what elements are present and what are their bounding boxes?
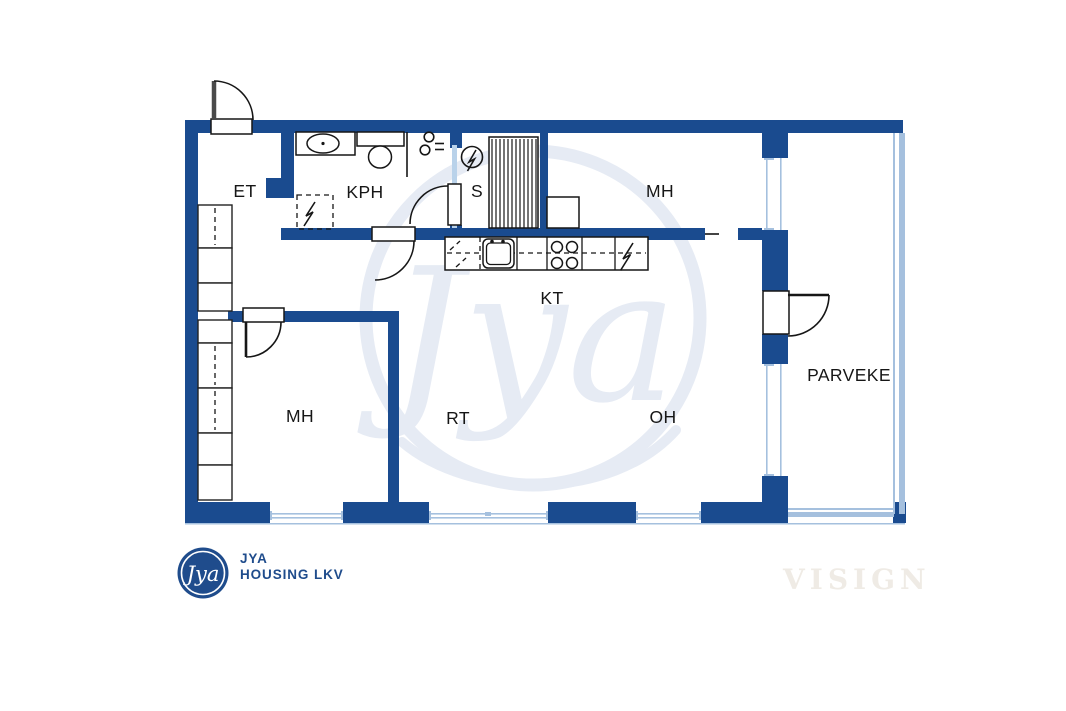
window-bottom-left <box>270 502 343 523</box>
balcony-railing-right <box>893 133 905 514</box>
entry-wardrobes <box>198 205 232 311</box>
balcony-door <box>763 291 829 336</box>
bedroom-closet-block <box>547 197 579 228</box>
left-wall <box>185 120 198 523</box>
east-wall-segment <box>762 133 788 158</box>
wardrobe-unit <box>198 283 232 311</box>
sauna-benches <box>489 137 538 228</box>
kitchen-sink-icon <box>483 239 514 268</box>
brand-logo: Jya JYA HOUSING LKV <box>178 548 344 599</box>
toilet-icon <box>357 132 404 168</box>
bedroom-door <box>243 308 284 357</box>
wardrobe-unit <box>198 248 232 283</box>
brand-name-line2: HOUSING LKV <box>240 567 344 582</box>
balcony-railing-bottom <box>788 508 894 517</box>
wardrobe-unit <box>198 465 232 500</box>
room-label-oh: OH <box>649 407 676 427</box>
room-label-mh-top: MH <box>646 181 674 201</box>
east-wall-segment <box>762 334 788 364</box>
window-east-upper <box>762 158 788 230</box>
room-label-rt: RT <box>446 408 470 428</box>
room-label-et: ET <box>233 181 256 201</box>
entrance-door <box>211 81 253 134</box>
washing-machine-icon <box>297 195 333 229</box>
floor-plan-page: Jya <box>0 0 1066 711</box>
kph-sauna-wall <box>450 120 462 148</box>
mh-south-wall-stub <box>738 228 762 240</box>
kph-west-wall <box>281 120 294 198</box>
coat-hook-icon <box>420 132 444 155</box>
kph-west-wall-step <box>266 178 282 198</box>
bedroom-wardrobes <box>198 320 232 500</box>
window-bottom-middle <box>429 502 548 523</box>
window-bottom-right <box>636 502 701 523</box>
washbasin-icon <box>296 132 355 155</box>
room-label-kph: KPH <box>346 182 383 202</box>
window-east-lower <box>762 364 788 476</box>
mh-rt-wall <box>388 311 399 502</box>
room-label-kt: KT <box>540 288 563 308</box>
east-wall-segment <box>762 476 788 502</box>
brand-badge-script: Jya <box>183 562 220 586</box>
east-wall-segment <box>762 230 788 291</box>
room-label-parveke: PARVEKE <box>807 365 891 385</box>
floor-plan: Jya <box>0 0 1066 711</box>
plinth-line <box>185 523 905 525</box>
brand-name-line1: JYA <box>240 551 268 566</box>
kitchen-counter <box>445 237 648 271</box>
kph-south-wall <box>281 228 372 240</box>
room-label-sauna: S <box>471 181 483 201</box>
room-label-mh-left: MH <box>286 406 314 426</box>
wardrobe-unit <box>198 433 232 465</box>
wardrobe-unit <box>198 320 232 343</box>
visign-watermark: VISIGN <box>782 563 931 596</box>
